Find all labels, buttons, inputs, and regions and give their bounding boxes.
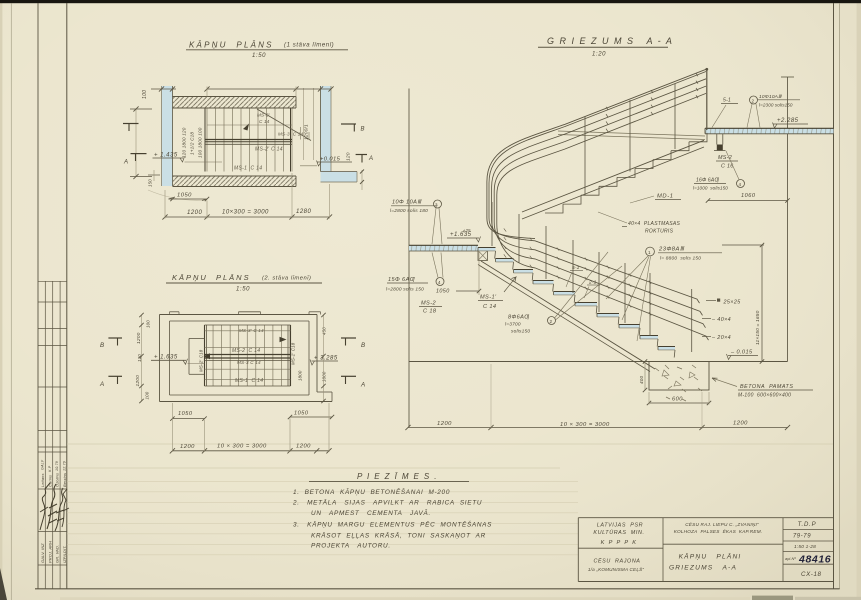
svg-text:1:20: 1:20 <box>592 52 606 58</box>
svg-text:KRĀSOT EĻĻAS KRĀSĀ, TONI S: KRĀSOT EĻĻAS KRĀSĀ, TONI SASKAŅOT AR <box>311 531 486 539</box>
svg-text:25×25: 25×25 <box>723 300 742 306</box>
svg-text:4: 4 <box>739 182 742 187</box>
svg-text:1050: 1050 <box>178 411 193 417</box>
svg-text:C 14: C 14 <box>483 304 496 310</box>
svg-text:1200: 1200 <box>136 332 142 344</box>
svg-text:1050: 1050 <box>294 411 309 417</box>
svg-text:l=2800 solis 180: l=2800 solis 180 <box>390 208 428 214</box>
svg-text:KOLHOZA PALSES ĒKAS KAP.REM: KOLHOZA PALSES ĒKAS KAP.REM. <box>674 528 763 534</box>
svg-text:79-79: 79-79 <box>793 534 811 540</box>
svg-text:≠25: ≠25 <box>463 228 471 233</box>
svg-text:Leitans: Leitans <box>40 473 45 487</box>
svg-text:CĒSU RAJONA: CĒSU RAJONA <box>593 558 640 565</box>
svg-text:G R I E Z U M S A - A: G R I E Z U M S A - A <box>547 36 673 46</box>
svg-text:1200: 1200 <box>180 444 195 450</box>
svg-text:solis150: solis150 <box>511 329 530 335</box>
svg-text:A: A <box>123 160 128 166</box>
svg-text:l=1000 solis150: l=1000 solis150 <box>693 186 728 191</box>
svg-text:1200: 1200 <box>187 210 203 216</box>
svg-text:10Φ10AⅢ: 10Φ10AⅢ <box>759 94 782 100</box>
svg-text:40×4 PLASTMASAS: 40×4 PLASTMASAS <box>628 221 681 227</box>
svg-text:P I E Z Ī M E S .: P I E Z Ī M E S . <box>357 472 438 481</box>
svg-text:1/a „KOMUNISMA CEĻŠ“: 1/a „KOMUNISMA CEĻŠ“ <box>588 566 644 572</box>
svg-text:A: A <box>360 382 365 389</box>
svg-text:GR. VAD.: GR. VAD. <box>55 545 60 563</box>
svg-text:KULTŪRAS MIN.: KULTŪRAS MIN. <box>593 529 644 536</box>
svg-text:1200/1: 1200/1 <box>304 124 310 140</box>
svg-text:5-1: 5-1 <box>572 265 580 271</box>
svg-text:apl.Nº: apl.Nº <box>785 557 796 561</box>
svg-text:1. BETONA KĀPŅU BETONĒŠANAI: 1. BETONA KĀPŅU BETONĒŠANAI M-200 <box>293 487 450 496</box>
svg-text:10 × 300 = 3000: 10 × 300 = 3000 <box>560 422 610 428</box>
svg-text:K P P P K: K P P P K <box>601 540 638 546</box>
svg-text:1060: 1060 <box>741 193 756 199</box>
svg-text:450: 450 <box>322 327 327 335</box>
svg-text:16Φ 6AƢ: 16Φ 6AƢ <box>696 178 719 184</box>
svg-text:2. METĀLA SIJAS APVILKT: 2. METĀLA SIJAS APVILKT AR RABICA SIETU <box>292 498 482 506</box>
svg-text:10 × 300 = 3000: 10 × 300 = 3000 <box>217 443 267 449</box>
svg-text:GALV: GALV <box>41 459 45 470</box>
svg-text:A: A <box>368 156 373 162</box>
svg-text:– 40×4: – 40×4 <box>711 317 731 323</box>
svg-text:400: 400 <box>639 375 644 384</box>
svg-text:– 20×4: – 20×4 <box>711 335 731 341</box>
svg-text:1280: 1280 <box>296 209 312 215</box>
svg-text:MS-2′ C18: MS-2′ C18 <box>199 349 204 372</box>
svg-text:10×300 = 3000: 10×300 = 3000 <box>222 210 269 216</box>
svg-text:B: B <box>361 127 365 133</box>
svg-text:KĀPŅU PLĀNS: KĀPŅU PLĀNS <box>189 41 274 50</box>
svg-text:+2.285: +2.285 <box>777 118 799 124</box>
svg-text:1: 1 <box>648 250 651 255</box>
svg-text:1200: 1200 <box>296 443 311 449</box>
svg-text:15Φ 6AƢ: 15Φ 6AƢ <box>388 277 415 283</box>
svg-text:+ 1.635: + 1.635 <box>154 355 178 361</box>
svg-text:1:50: 1:50 <box>236 287 250 293</box>
svg-text:BETONA PAMATS: BETONA PAMATS <box>740 384 793 390</box>
svg-text:ROKTURIS: ROKTURIS <box>645 229 674 235</box>
svg-text:1:50: 1:50 <box>252 53 266 59</box>
svg-text:+ 3.285: + 3.285 <box>314 355 338 361</box>
svg-text:1200: 1200 <box>437 421 452 427</box>
svg-text:1800: 1800 <box>322 371 327 382</box>
svg-text:(2. stāva līmenī): (2. stāva līmenī) <box>262 276 311 282</box>
svg-text:C 18: C 18 <box>423 309 437 315</box>
svg-text:12.79: 12.79 <box>63 461 67 471</box>
svg-text:MD-1: MD-1 <box>657 194 674 200</box>
svg-text:K.P: K.P <box>48 465 52 472</box>
svg-text:l=3700: l=3700 <box>505 322 521 328</box>
svg-text:A: A <box>99 381 104 388</box>
svg-text:MS-1′: MS-1′ <box>480 295 497 301</box>
svg-text:600: 600 <box>672 397 683 403</box>
svg-text:MS-2: MS-2 <box>421 301 436 307</box>
svg-text:3. KĀPŅU MARGU ELEMENTUS: 3. KĀPŅU MARGU ELEMENTUS PĒC MONTĒŠANAS <box>293 519 492 528</box>
svg-text:1:50 1-28: 1:50 1-28 <box>794 544 816 550</box>
svg-text:10Φ 10AⅢ: 10Φ 10AⅢ <box>392 199 422 206</box>
svg-text:8Φ6AƢ: 8Φ6AƢ <box>508 315 530 321</box>
svg-text:B: B <box>100 342 104 349</box>
svg-text:UN APMEST CEMENTA JAVĀ.: UN APMEST CEMENTA JAVĀ. <box>311 509 431 517</box>
svg-text:LATVIJAS PSR: LATVIJAS PSR <box>597 523 643 529</box>
svg-text:100 1800 100: 100 1800 100 <box>198 127 203 158</box>
svg-text:4: 4 <box>438 280 441 285</box>
svg-text:CX-18: CX-18 <box>801 571 822 578</box>
svg-text:MS-3′ C 14: MS-3′ C 14 <box>239 328 264 333</box>
svg-text:120: 120 <box>346 152 352 161</box>
svg-text:MS-2′ C 14: MS-2′ C 14 <box>255 147 283 153</box>
svg-text:MS-1 C 14: MS-1 C 14 <box>234 166 262 172</box>
svg-text:Berzins: Berzins <box>62 473 67 487</box>
svg-text:MS-3 C 14: MS-3 C 14 <box>237 360 261 365</box>
svg-text:1050: 1050 <box>436 289 450 295</box>
svg-text:2: 2 <box>752 99 755 104</box>
svg-text:2-1: 2-1 <box>588 280 597 286</box>
svg-text:– 0.015: – 0.015 <box>730 350 753 356</box>
svg-text:B: B <box>361 342 365 349</box>
svg-text:3: 3 <box>435 203 438 208</box>
svg-text:23Φ8AⅢ: 23Φ8AⅢ <box>658 246 685 253</box>
svg-text:MS-3 C 14: MS-3 C 14 <box>278 132 303 137</box>
svg-text:M-100 600×600×400: M-100 600×600×400 <box>738 393 791 399</box>
svg-text:MS-1 C 14: MS-1 C 14 <box>235 378 263 384</box>
svg-text:MS-1′ C18: MS-1′ C18 <box>291 342 296 365</box>
svg-text:l=2800 solis 150: l=2800 solis 150 <box>386 287 424 293</box>
svg-text:GRIEZUMS A-A: GRIEZUMS A-A <box>669 565 737 572</box>
svg-text:C 16: C 16 <box>721 164 734 170</box>
svg-text:10.79: 10.79 <box>55 461 59 471</box>
svg-text:C 14: C 14 <box>259 119 270 124</box>
svg-text:(1 stāva līmenī): (1 stāva līmenī) <box>284 43 334 49</box>
svg-text:KĀPŅU PLĀNS: KĀPŅU PLĀNS <box>172 273 251 282</box>
svg-text:GALV. INZ: GALV. INZ <box>40 543 45 563</box>
svg-text:150: 150 <box>148 179 153 187</box>
svg-text:MS-2 C 14: MS-2 C 14 <box>232 348 260 354</box>
svg-text:100: 100 <box>145 391 150 399</box>
svg-text:l= 8800 solis 150: l= 8800 solis 150 <box>660 256 701 262</box>
svg-text:T.D.P: T.D.P <box>798 522 817 528</box>
svg-text:1800: 1800 <box>298 370 303 381</box>
svg-text:2: 2 <box>550 319 553 324</box>
svg-text:120 1800 120: 120 1800 120 <box>182 127 187 158</box>
svg-text:1050: 1050 <box>177 193 192 199</box>
svg-text:1200: 1200 <box>733 421 748 427</box>
svg-text:100: 100 <box>142 90 148 99</box>
svg-text:CĒSU RAJ. LIEPU C. „ZVANIŅI“: CĒSU RAJ. LIEPU C. „ZVANIŅI“ <box>685 521 759 527</box>
svg-text:MS-3′: MS-3′ <box>257 113 270 118</box>
svg-text:11×150 = 1650: 11×150 = 1650 <box>755 310 761 345</box>
svg-text:48416: 48416 <box>798 554 831 566</box>
svg-text:KĀPŅU PLĀNI: KĀPŅU PLĀNI <box>679 553 742 561</box>
svg-text:100: 100 <box>146 320 151 328</box>
svg-text:l=2300 solis150: l=2300 solis150 <box>759 103 793 108</box>
svg-text:PROJ. ARH: PROJ. ARH <box>47 541 52 563</box>
svg-text:PROJEKTA AUTORU.: PROJEKTA AUTORU. <box>311 542 391 549</box>
svg-text:1200: 1200 <box>135 375 141 387</box>
svg-text:1+1/2 C18: 1+1/2 C18 <box>190 132 195 155</box>
svg-text:5-1: 5-1 <box>723 98 731 104</box>
svg-text:IZPILDIT.: IZPILDIT. <box>62 545 67 563</box>
